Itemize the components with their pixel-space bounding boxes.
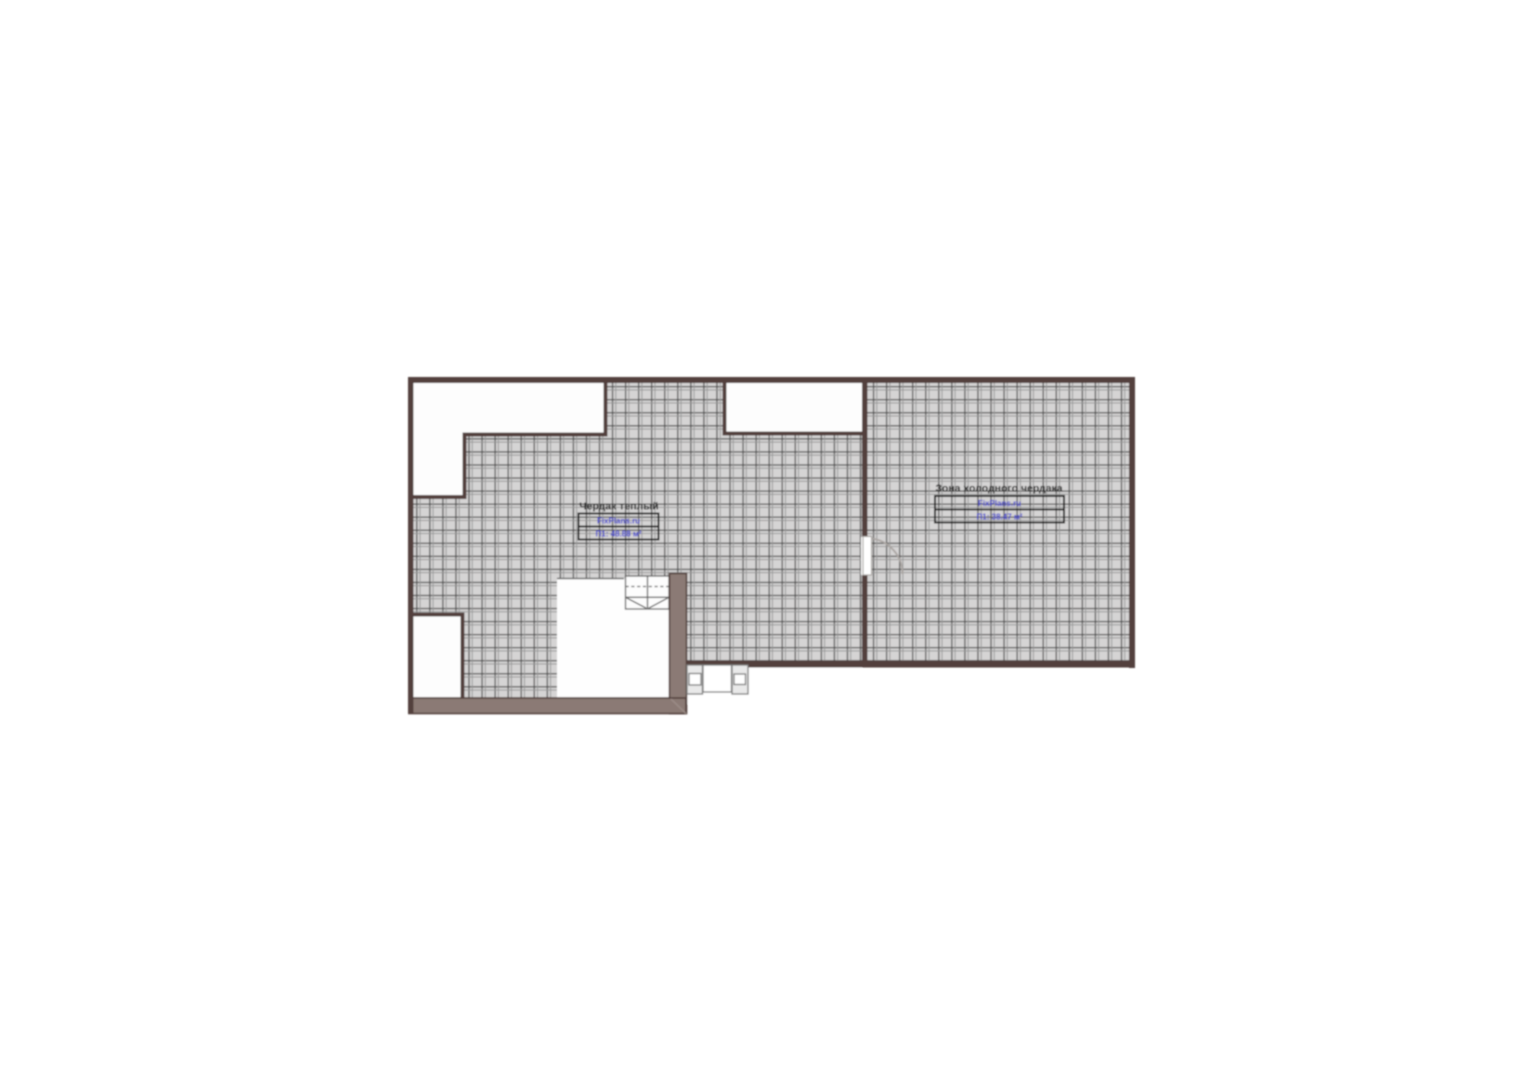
svg-text:П1: 38.47 м²: П1: 38.47 м² bbox=[977, 513, 1023, 522]
svg-text:Чердак теплый: Чердак теплый bbox=[579, 501, 658, 513]
svg-text:FixPlans.ru: FixPlans.ru bbox=[597, 517, 640, 526]
svg-text:П1: 48.88 м²: П1: 48.88 м² bbox=[596, 530, 642, 539]
svg-text:FixPlans.ru: FixPlans.ru bbox=[978, 499, 1021, 508]
svg-text:Зона холодного чердака: Зона холодного чердака bbox=[935, 483, 1062, 495]
